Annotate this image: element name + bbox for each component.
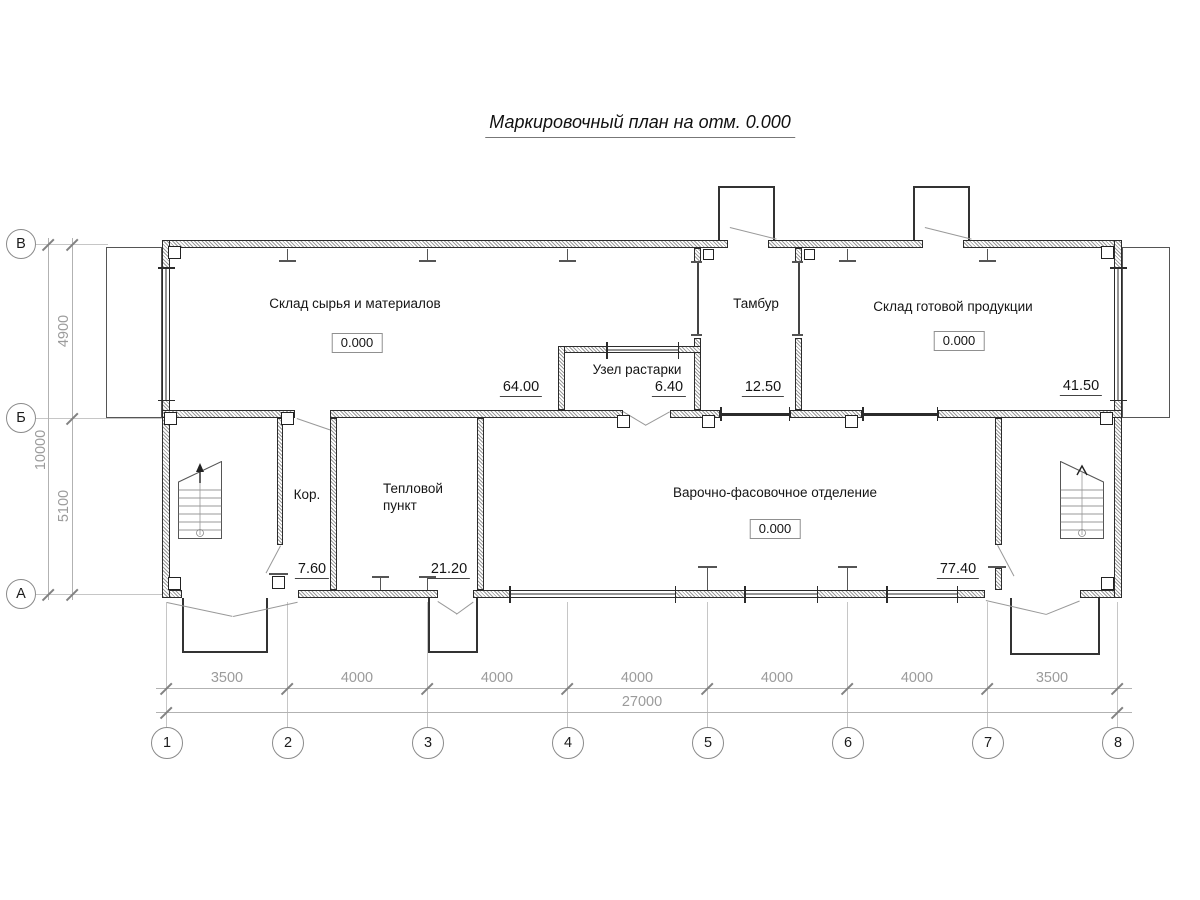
axis-circle-1: 1	[151, 727, 183, 759]
axis-number: 2	[284, 735, 292, 751]
dim-label: 10000	[33, 430, 49, 470]
axis-extension-line	[707, 602, 708, 728]
axis-extension-line	[36, 418, 164, 419]
room-label-vestibule: Тамбур	[733, 296, 779, 311]
axis-circle-7: 7	[972, 727, 1004, 759]
elevation-mark: 0.000	[332, 333, 383, 353]
loading-platform-right	[1122, 247, 1170, 418]
column-mark	[269, 573, 288, 575]
room-number: 6.40	[652, 379, 686, 397]
axis-extension-line	[567, 602, 568, 728]
dim-label: 4000	[341, 670, 373, 686]
room-label-cooking: Варочно-фасовочное отделение	[673, 485, 877, 500]
column-mark	[372, 576, 389, 578]
door-swing	[297, 418, 330, 430]
room-label-corridor: Кор.	[294, 487, 321, 502]
column-mark	[279, 260, 296, 262]
axis-circle-a: А	[6, 579, 36, 609]
floor-plan-drawing: Маркировочный план на отм. 0.000 3500 40…	[0, 0, 1200, 900]
dimension-line	[156, 712, 1132, 713]
column	[1101, 246, 1114, 259]
room-number: 21.20	[428, 561, 470, 579]
column-mark	[427, 578, 428, 590]
axis-extension-line	[36, 594, 164, 595]
column-mark	[988, 566, 1006, 568]
entrance-porch-bottom-2	[428, 598, 478, 653]
dim-label: 5100	[56, 490, 72, 522]
column-mark	[979, 260, 996, 262]
wall-segment	[963, 240, 1122, 248]
dim-label-total: 27000	[622, 694, 662, 710]
axis-circle-2: 2	[272, 727, 304, 759]
column	[168, 577, 181, 590]
staircase-left	[178, 461, 222, 539]
wall-segment	[473, 590, 510, 598]
door-swing	[266, 546, 281, 574]
wall-segment	[162, 400, 170, 598]
window	[745, 590, 817, 598]
axis-circle-v: В	[6, 229, 36, 259]
wall-pier	[675, 590, 745, 598]
room-number: 64.00	[500, 379, 542, 397]
door-leaf	[798, 262, 800, 336]
room-label-finished-warehouse: Склад готовой продукции	[873, 299, 1032, 314]
room-number: 77.40	[937, 561, 979, 579]
axis-letter: А	[16, 586, 26, 602]
axis-number: 5	[704, 735, 712, 751]
column-mark	[847, 568, 848, 590]
axis-number: 7	[984, 735, 992, 751]
axis-circle-5: 5	[692, 727, 724, 759]
drawing-title: Маркировочный план на отм. 0.000	[485, 112, 795, 138]
column	[168, 246, 181, 259]
dimension-line	[48, 238, 49, 600]
partition-unpacking-top	[678, 346, 701, 353]
room-number: 12.50	[742, 379, 784, 397]
dim-label: 3500	[211, 670, 243, 686]
wall-segment	[768, 240, 923, 248]
entrance-porch-bottom-1	[182, 598, 268, 653]
dim-label: 4000	[481, 670, 513, 686]
column-mark	[707, 568, 708, 590]
column-mark	[380, 578, 381, 590]
wall-opening	[862, 413, 938, 416]
window	[607, 346, 678, 353]
door-leaf-cap	[792, 261, 803, 263]
partition-unpacking-left	[558, 346, 565, 410]
partition-unpacking-top	[558, 346, 607, 353]
column	[1100, 412, 1113, 425]
axis-letter: В	[16, 236, 26, 252]
column	[703, 249, 714, 260]
door-swing	[645, 411, 670, 425]
wall-opening	[720, 413, 790, 416]
axis-circle-4: 4	[552, 727, 584, 759]
column-mark	[698, 566, 717, 568]
axis-circle-8: 8	[1102, 727, 1134, 759]
axis-circle-3: 3	[412, 727, 444, 759]
window	[510, 590, 675, 598]
window	[1114, 268, 1122, 400]
axis-extension-line	[847, 602, 848, 728]
partition-vestibule-right	[795, 248, 802, 262]
column-mark	[559, 260, 576, 262]
room-number: 7.60	[295, 561, 329, 579]
partition-stair-right	[995, 418, 1002, 545]
column-mark	[838, 566, 857, 568]
axis-number: 3	[424, 735, 432, 751]
staircase-right	[1060, 461, 1104, 539]
dim-label: 4000	[901, 670, 933, 686]
elevation-mark: 0.000	[934, 331, 985, 351]
wall-segment	[162, 240, 728, 248]
partition-corridor-left	[277, 418, 283, 545]
room-label-unpacking: Узел растарки	[593, 362, 682, 377]
axis-number: 8	[1114, 735, 1122, 751]
wall-segment	[1114, 240, 1122, 268]
room-number: 41.50	[1060, 378, 1102, 396]
door-leaf-cap	[691, 334, 702, 336]
axis-number: 4	[564, 735, 572, 751]
axis-circle-b: Б	[6, 403, 36, 433]
dim-label: 4900	[56, 315, 72, 347]
wall-segment	[938, 410, 1122, 418]
axis-extension-line	[987, 602, 988, 728]
partition-stub	[995, 568, 1002, 590]
column-mark	[839, 260, 856, 262]
wall-segment	[330, 410, 623, 418]
window	[887, 590, 957, 598]
partition-heatstation-left	[330, 418, 337, 590]
wall-pier	[817, 590, 887, 598]
axis-number: 1	[163, 735, 171, 751]
dim-label: 4000	[761, 670, 793, 686]
partition-vestibule-left	[694, 248, 701, 262]
door-leaf	[697, 262, 699, 336]
wall-segment	[957, 590, 985, 598]
column	[272, 576, 285, 589]
partition-heatstation-right	[477, 418, 484, 590]
column	[804, 249, 815, 260]
axis-letter: Б	[16, 410, 26, 426]
wall-segment	[298, 590, 438, 598]
elevation-mark: 0.000	[750, 519, 801, 539]
wall-segment	[1114, 400, 1122, 598]
column	[702, 415, 715, 428]
dim-label: 4000	[621, 670, 653, 686]
loading-platform-left	[106, 247, 162, 418]
room-label-heat-station: Тепловой пункт	[383, 481, 459, 515]
column	[617, 415, 630, 428]
column-mark	[419, 260, 436, 262]
wall-segment	[162, 410, 295, 418]
axis-number: 6	[844, 735, 852, 751]
column	[1101, 577, 1114, 590]
dim-label: 3500	[1036, 670, 1068, 686]
room-label-raw-warehouse: Склад сырья и материалов	[269, 296, 440, 311]
partition-vestibule-right	[795, 338, 802, 410]
entrance-porch-bottom-3	[1010, 598, 1100, 655]
axis-extension-line	[287, 602, 288, 728]
column	[281, 412, 294, 425]
door-leaf-cap	[792, 334, 803, 336]
window	[162, 268, 170, 400]
column	[164, 412, 177, 425]
axis-circle-6: 6	[832, 727, 864, 759]
door-leaf-cap	[691, 261, 702, 263]
column	[845, 415, 858, 428]
